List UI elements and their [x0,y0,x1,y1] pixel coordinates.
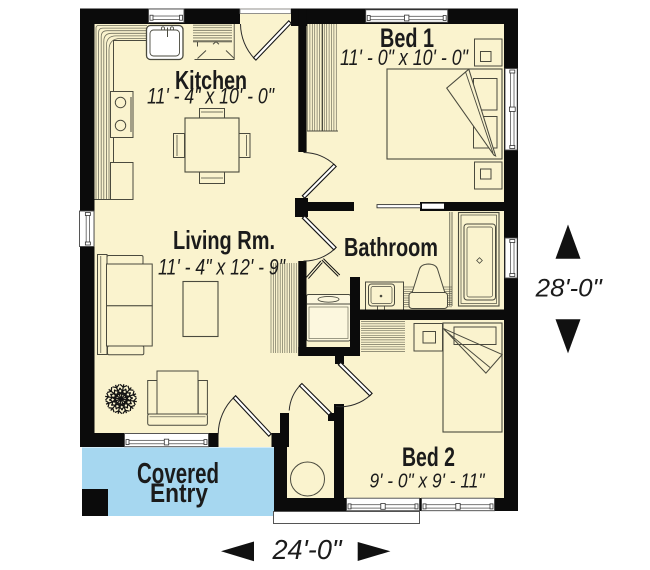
svg-text:24'-0": 24'-0" [272,534,343,565]
svg-text:28'-0": 28'-0" [535,275,603,303]
svg-text:Entry: Entry [150,478,208,508]
svg-text:Bathroom: Bathroom [344,232,438,262]
svg-text:11' - 0" x 10' - 0": 11' - 0" x 10' - 0" [340,45,469,70]
svg-text:Living Rm.: Living Rm. [173,225,275,255]
svg-text:11' - 4" x 12' - 9": 11' - 4" x 12' - 9" [158,255,286,280]
svg-text:Bed 2: Bed 2 [402,442,455,472]
svg-text:9' - 0" x 9' - 11": 9' - 0" x 9' - 11" [370,471,486,493]
svg-text:11' - 4" x 10' - 0": 11' - 4" x 10' - 0" [147,84,275,109]
